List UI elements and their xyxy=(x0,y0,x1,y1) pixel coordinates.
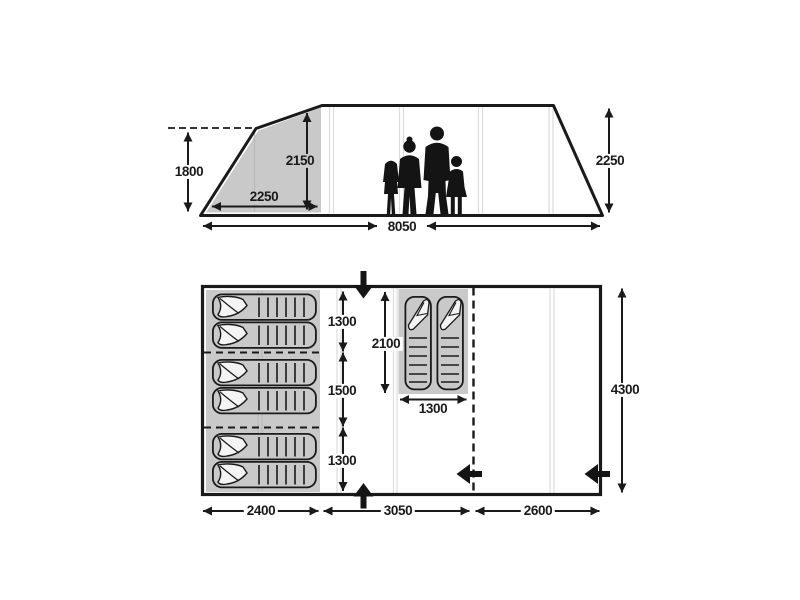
dim-label-section-bottom: 1300 xyxy=(325,453,359,467)
dim-label-front-width: 2600 xyxy=(521,504,555,518)
door-arrow-bottom-icon xyxy=(354,483,374,509)
dim-label-total-length: 8050 xyxy=(385,219,419,233)
dim-label-rear-height: 2250 xyxy=(593,154,627,168)
sleeping-bag xyxy=(405,297,431,390)
dim-label-bedroom-width-side: 2250 xyxy=(247,189,281,203)
door-arrow-divider-icon xyxy=(457,464,483,484)
dim-label-bedroom-height: 2150 xyxy=(283,154,317,168)
sleeping-bag xyxy=(437,297,463,390)
dim-label-total-depth: 4300 xyxy=(608,382,642,396)
entrance-arrows xyxy=(354,271,611,509)
sleeping-bag xyxy=(213,434,316,460)
door-arrow-side-icon xyxy=(585,464,611,484)
floorplan-view xyxy=(203,271,623,511)
dim-label-living-width: 3050 xyxy=(381,504,415,518)
dim-label-inner-tent-depth: 2100 xyxy=(369,336,403,350)
sleeping-bag xyxy=(213,360,316,386)
sleeping-bag xyxy=(213,322,316,348)
dim-label-height-front: 1800 xyxy=(172,164,206,178)
sleeping-bag xyxy=(213,388,316,414)
dim-label-bedroom-width: 2400 xyxy=(244,504,278,518)
dim-label-section-middle: 1500 xyxy=(325,384,359,398)
dim-label-inner-tent-width: 1300 xyxy=(416,402,450,416)
dim-label-section-top: 1300 xyxy=(325,314,359,328)
sleeping-bag xyxy=(213,294,316,320)
elevation-view xyxy=(168,106,609,227)
family-silhouette-icon xyxy=(383,127,467,215)
sleeping-bag xyxy=(213,462,316,488)
tent-diagram: 1800 2250 2150 2250 8050 1300 1500 1300 … xyxy=(0,0,800,600)
door-arrow-top-icon xyxy=(354,271,374,299)
